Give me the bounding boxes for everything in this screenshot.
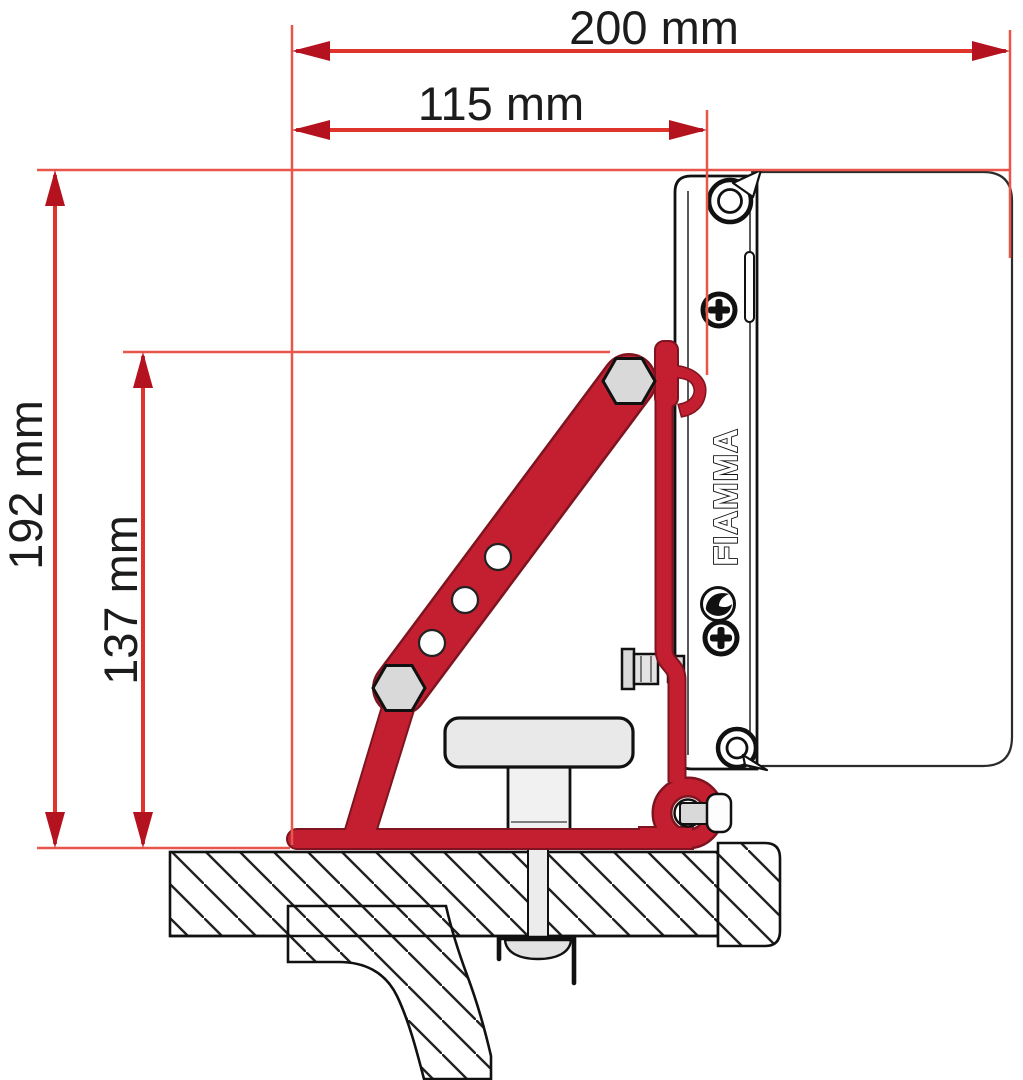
- dimension-192mm: 192 mm: [0, 170, 65, 848]
- dimension-115mm: 115 mm: [292, 77, 707, 140]
- awning-rail: FIAMMA: [675, 170, 767, 770]
- rail-bottom-roller: [718, 729, 767, 770]
- technical-diagram: FIAMMA: [0, 0, 1023, 1080]
- roller-inner-ring: [719, 190, 742, 213]
- awning-case-outline: [752, 172, 1012, 766]
- arrow-down-icon: [45, 812, 65, 848]
- screw-cross-v: [718, 627, 725, 649]
- t-knob: [445, 718, 633, 767]
- dimension-label: 200 mm: [569, 1, 739, 54]
- arm-hole: [452, 587, 478, 613]
- rail-slot: [745, 252, 754, 322]
- t-bolt: [445, 718, 633, 832]
- roof-block-right: [718, 843, 780, 946]
- roof-bolt-washer: [505, 940, 571, 959]
- screw-cross-v: [716, 299, 723, 321]
- arrow-up-icon: [133, 352, 153, 388]
- bolt-flange: [622, 649, 634, 689]
- dimension-label: 192 mm: [0, 400, 52, 570]
- arrow-left-icon: [292, 120, 330, 140]
- roof-bolt-shaft: [528, 845, 548, 941]
- clamp-pin-head: [707, 794, 731, 832]
- fiamma-logo-icon: [702, 588, 735, 621]
- hex-bolt-bottom: [373, 666, 425, 711]
- arm-hole: [419, 630, 445, 656]
- arrow-right-icon: [972, 41, 1010, 61]
- arrow-right-icon: [669, 120, 707, 140]
- arm-hole: [485, 544, 511, 570]
- bracket-leg: [345, 703, 413, 836]
- fiamma-brand-text: FIAMMA: [707, 428, 744, 566]
- arrow-down-icon: [133, 812, 153, 848]
- phillips-screw-icon: [705, 622, 737, 654]
- arrow-up-icon: [45, 170, 65, 206]
- base-plate: [288, 830, 668, 848]
- dimension-label: 115 mm: [418, 77, 584, 130]
- hex-bolt-top: [603, 359, 655, 404]
- arrow-left-icon: [292, 41, 330, 61]
- dimension-label: 137 mm: [94, 515, 147, 685]
- diagram-canvas: FIAMMA: [0, 0, 1023, 1080]
- base-plate-right: [640, 828, 692, 848]
- bolt-head: [634, 654, 658, 684]
- dimension-137mm: 137 mm: [94, 352, 153, 848]
- dimension-200mm: 200 mm: [292, 1, 1010, 61]
- bracket-red-body: [288, 342, 714, 848]
- roof-section: [170, 843, 780, 1079]
